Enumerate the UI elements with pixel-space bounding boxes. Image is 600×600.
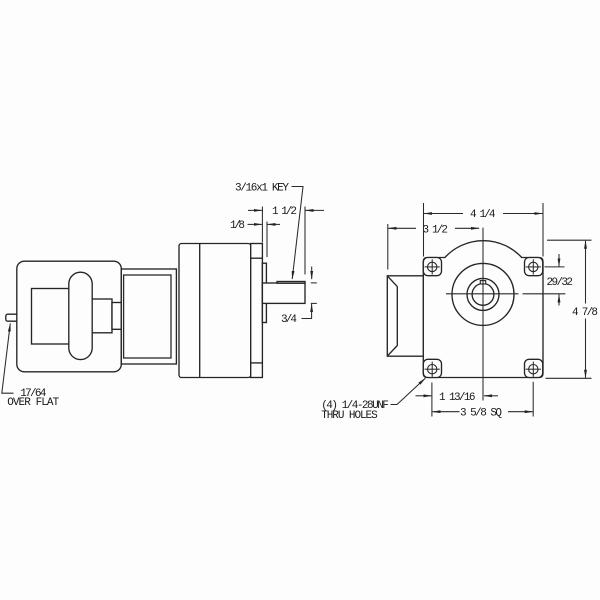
svg-text:3/16x1 KEY: 3/16x1 KEY xyxy=(235,183,289,195)
svg-text:3 1/2: 3 1/2 xyxy=(423,225,449,237)
svg-text:4 7/8: 4 7/8 xyxy=(572,307,598,319)
svg-text:3 5/8 SQ: 3 5/8 SQ xyxy=(460,408,502,420)
svg-text:OVER FLAT: OVER FLAT xyxy=(7,397,59,409)
svg-text:1 1/2: 1 1/2 xyxy=(272,206,297,218)
svg-text:1 13/16: 1 13/16 xyxy=(439,392,476,404)
svg-text:THRU HOLES: THRU HOLES xyxy=(321,410,378,422)
svg-text:4 1/4: 4 1/4 xyxy=(470,209,496,221)
svg-text:29/32: 29/32 xyxy=(547,277,574,289)
svg-text:1/8: 1/8 xyxy=(230,220,245,232)
svg-text:3/4: 3/4 xyxy=(281,314,297,326)
